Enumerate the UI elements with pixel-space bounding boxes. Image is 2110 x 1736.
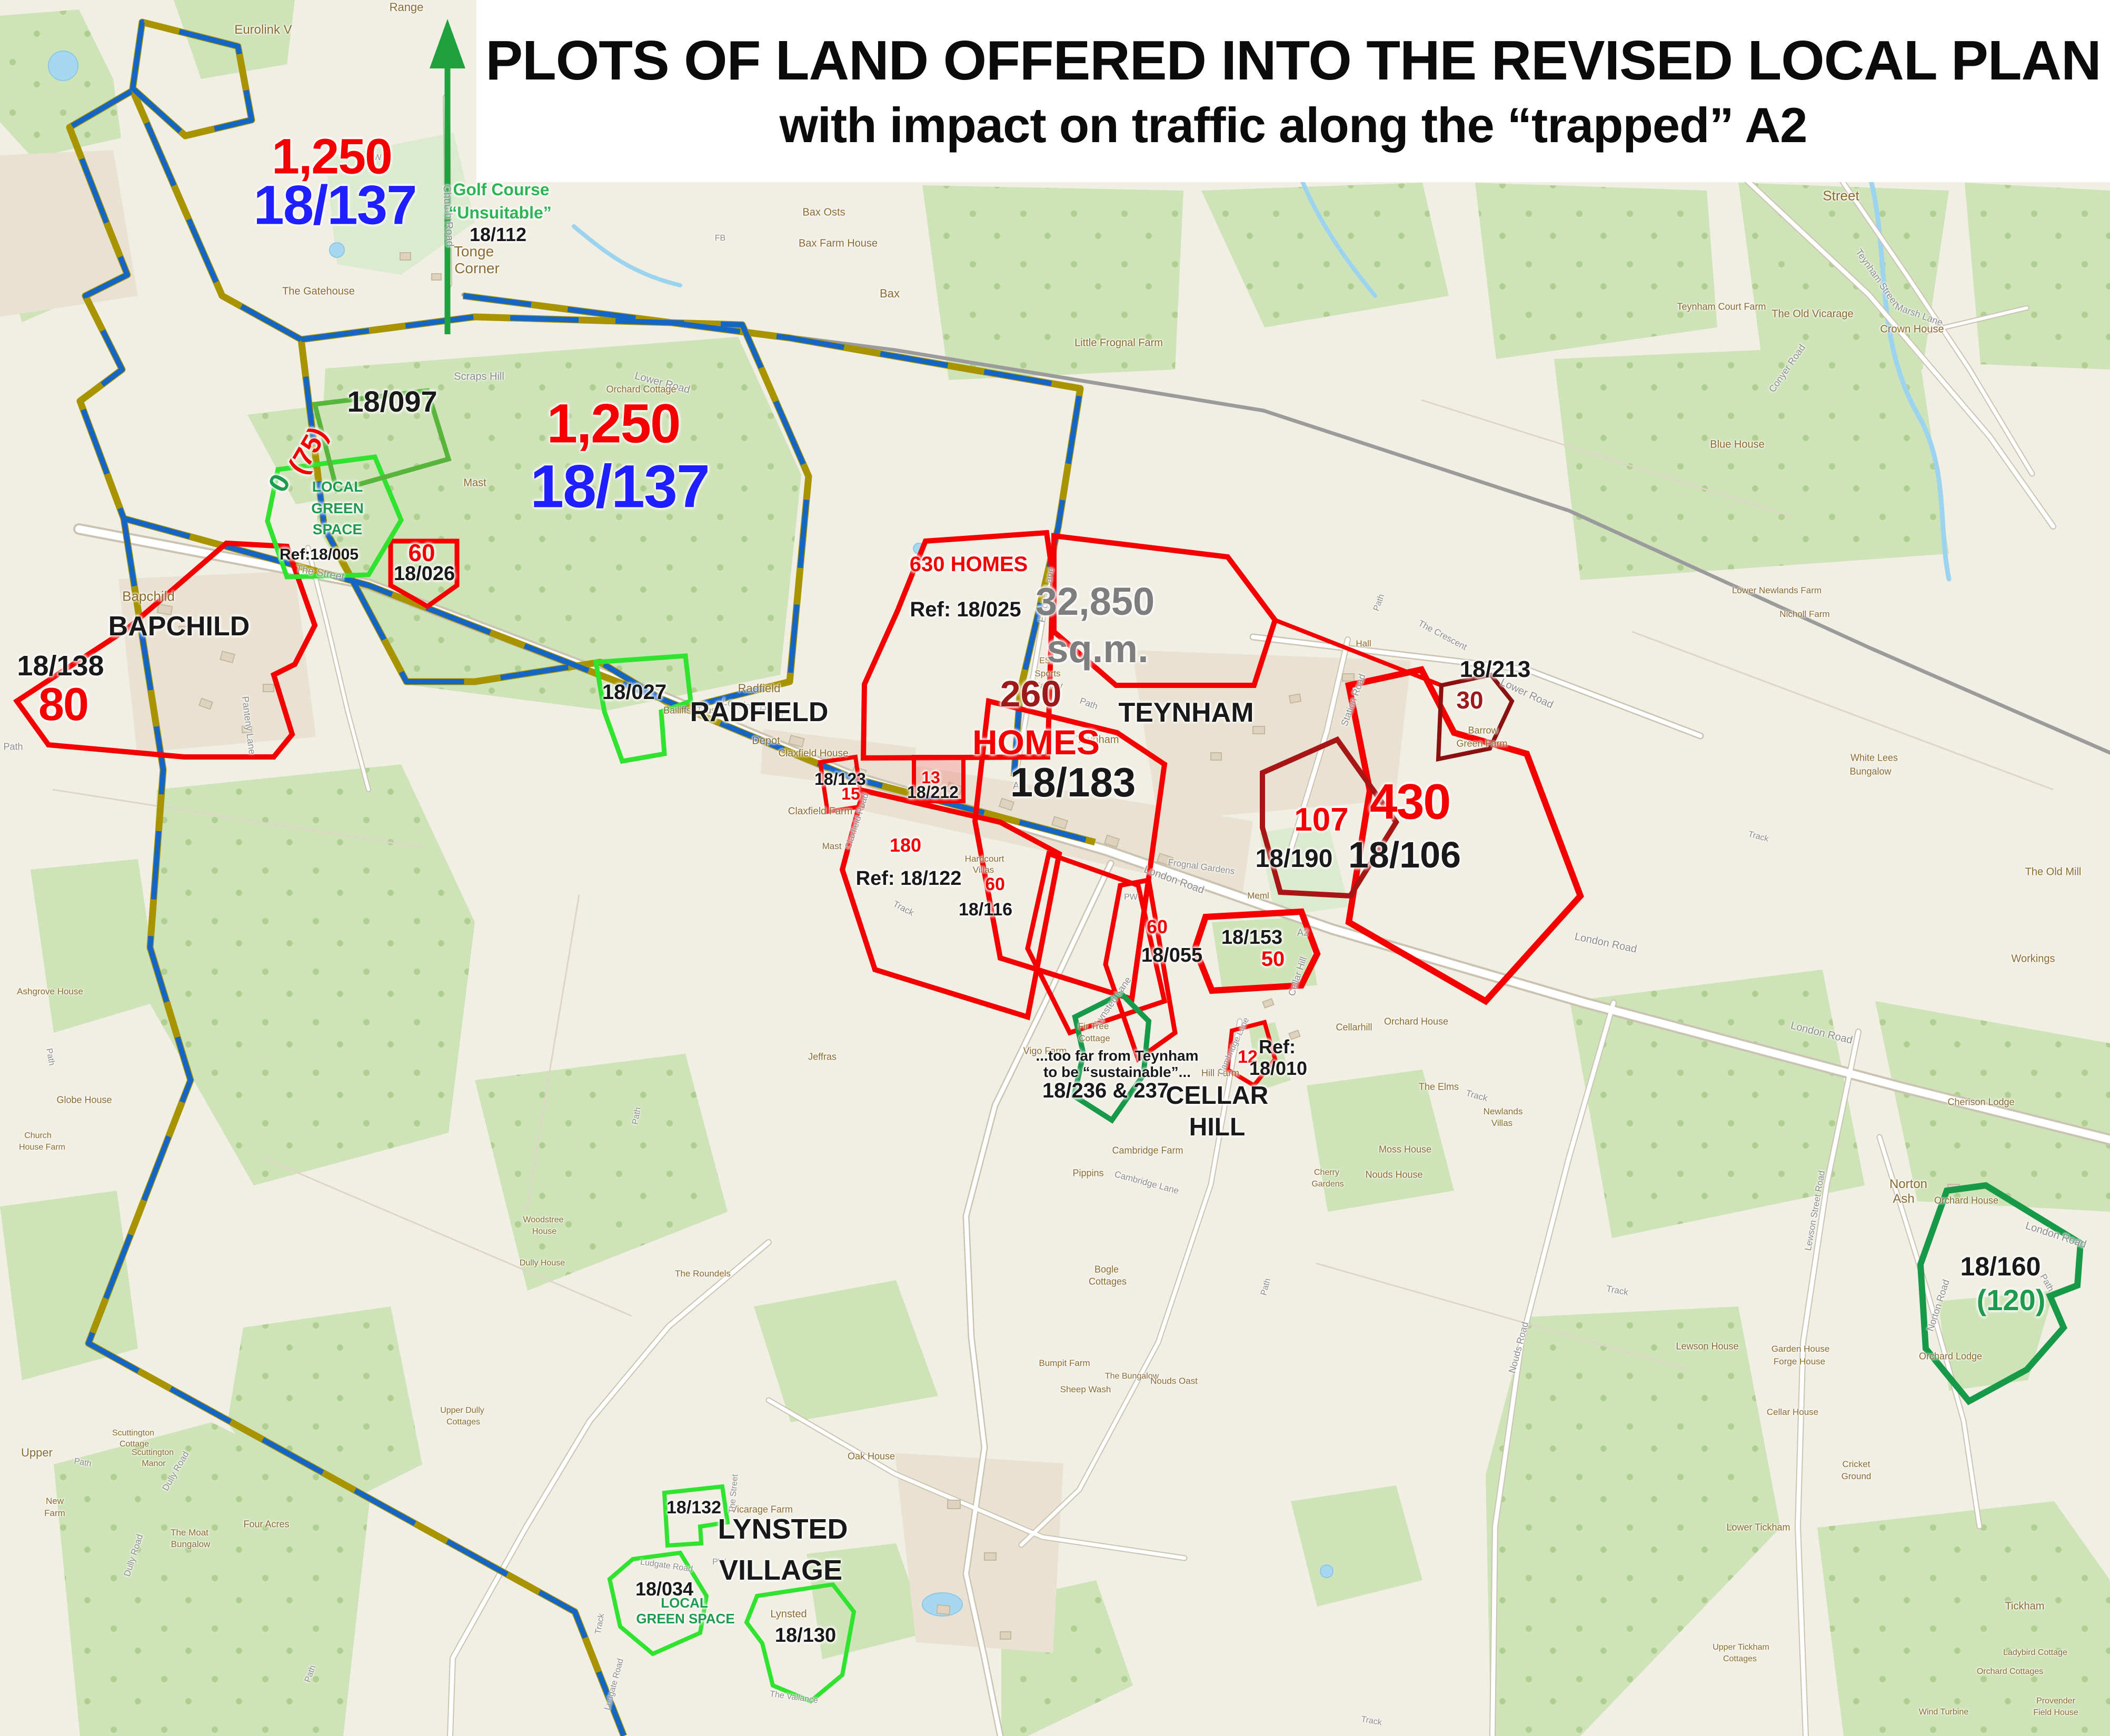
map-page: Eurolink VRangeTongeCornerThe GatehouseS… xyxy=(0,0,2110,1736)
plot-outline-18-132 xyxy=(664,1486,728,1545)
plot-outline-18-212 xyxy=(914,757,963,801)
page-title-line1: PLOTS OF LAND OFFERED INTO THE REVISED L… xyxy=(485,29,2101,93)
title-banner: PLOTS OF LAND OFFERED INTO THE REVISED L… xyxy=(476,0,2110,182)
page-title-line2: with impact on traffic along the “trappe… xyxy=(780,97,1807,154)
plot-outline-18-055 xyxy=(1106,880,1175,1059)
plot-outline-18-034 xyxy=(610,1553,706,1654)
base-map xyxy=(0,0,2110,1736)
